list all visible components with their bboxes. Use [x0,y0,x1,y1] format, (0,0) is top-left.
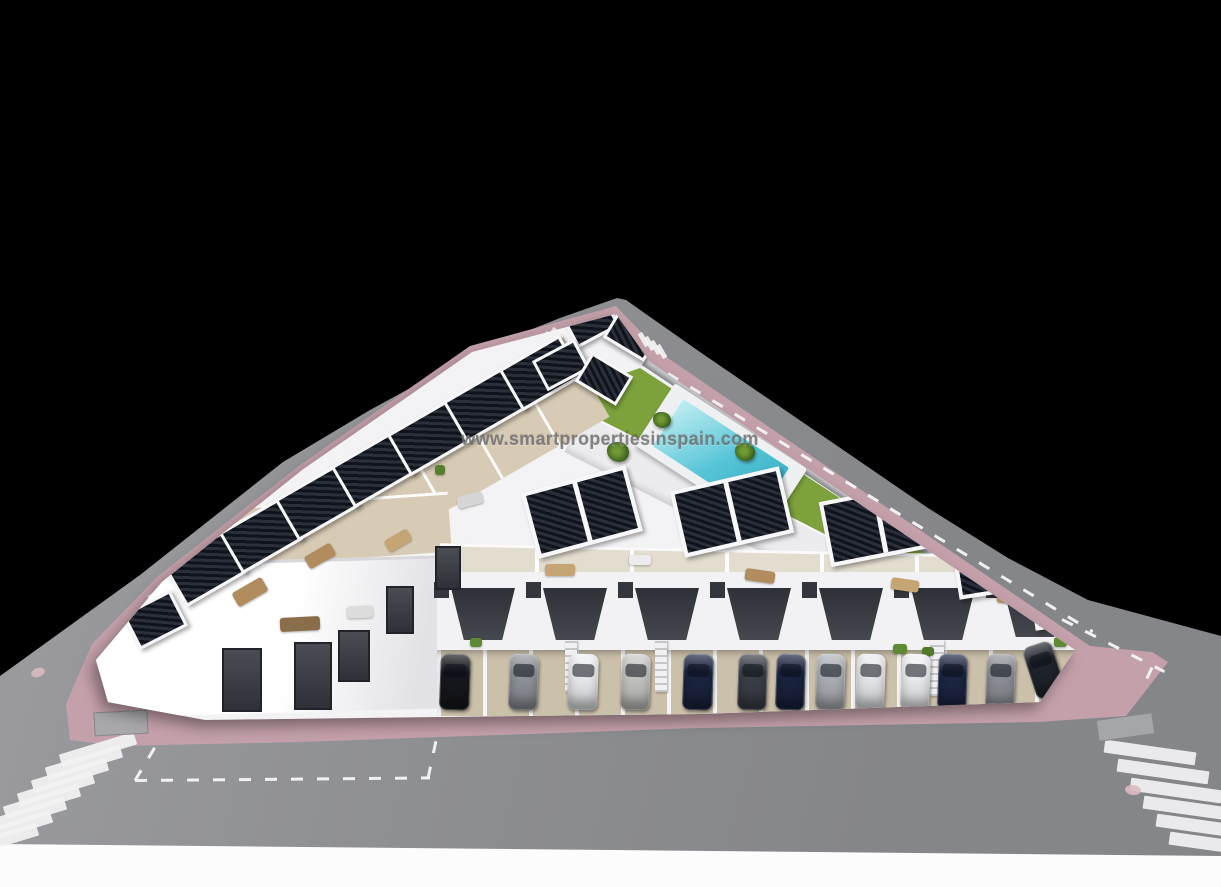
parked-car [985,654,1016,711]
parked-car [567,653,599,710]
window-slit [1059,582,1073,598]
parked-car [900,654,931,711]
parked-car [508,654,539,711]
solar-pergola-large [1029,573,1107,631]
parked-car [815,654,846,711]
parked-car [855,654,886,711]
parked-car [737,654,768,711]
property-aerial-render: www.smartpropertiesinspain.com [0,0,1221,887]
parked-car [620,654,651,711]
parked-car [439,653,471,710]
parked-car [1021,640,1066,701]
watermark-text: www.smartpropertiesinspain.com [447,429,773,450]
parked-car [937,654,968,711]
parked-car [775,654,806,711]
parked-car [682,653,714,710]
